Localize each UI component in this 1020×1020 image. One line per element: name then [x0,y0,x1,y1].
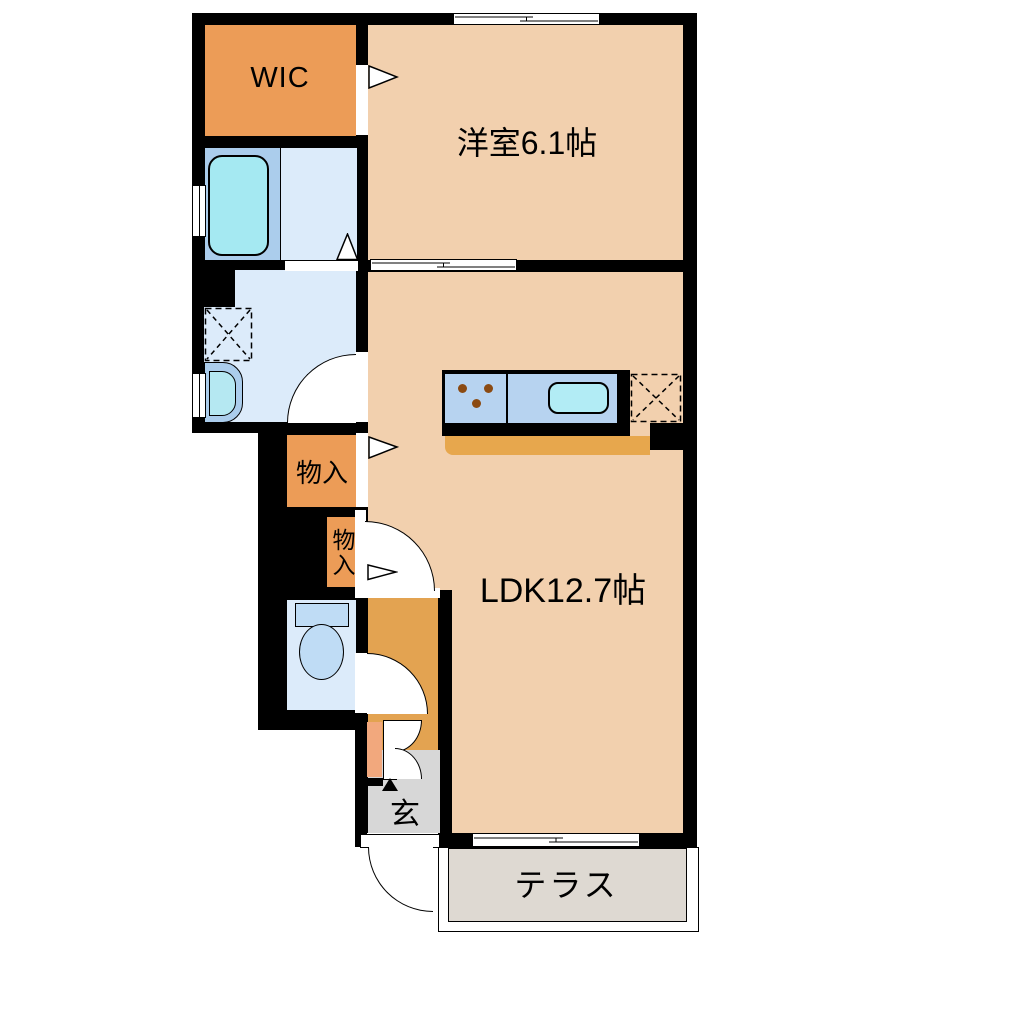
kitchen-counter-bar [445,436,650,455]
bathroom-window [192,185,206,237]
washroom-window [192,373,206,418]
western-room-label: 洋室6.1帖 [397,124,657,158]
storage-1-door-sill [356,433,368,507]
stove-burner [484,384,493,393]
bathroom-door-sill [285,261,358,271]
refrigerator-space [630,373,682,423]
washroom-door-sill [355,352,368,422]
kitchen-sink [548,382,609,414]
kitchen-counter-divider [506,374,508,423]
ldk-label: LDK12.7帖 [433,569,693,605]
ldk-terrace-window [472,833,640,847]
floor-plan: WIC 洋室6.1帖 LDK12.7帖 物入 物入 玄 テラス [0,0,1020,1020]
entrance-step-wall [355,778,383,786]
wic-door-sill [356,65,368,135]
stove-burner [472,399,481,408]
storage-2-door-arrow [367,564,398,581]
kitchen-side-wall [650,423,697,450]
room-ldk-lower [452,590,683,833]
terrace-label: テラス [448,866,685,900]
storage-1-label: 物入 [287,456,357,486]
wash-basin-bowl [209,371,236,416]
partition-sliding-door [370,259,517,271]
washing-machine-space [204,307,253,362]
storage-1-door-arrow [368,436,399,459]
entrance-label: 玄 [384,794,426,828]
stove-burner [458,384,467,393]
entrance-door-swing [368,847,433,912]
toilet-bowl [299,624,344,680]
entrance-inner-strip [367,722,382,777]
bathtub [208,155,269,256]
wic-door-arrow [368,65,399,89]
entrance-door-leaf [360,834,440,848]
western-room-window [453,13,600,25]
bathroom-door-arrow [336,233,359,261]
wic-label: WIC [222,62,338,94]
storage-2-label: 物入 [328,520,356,586]
